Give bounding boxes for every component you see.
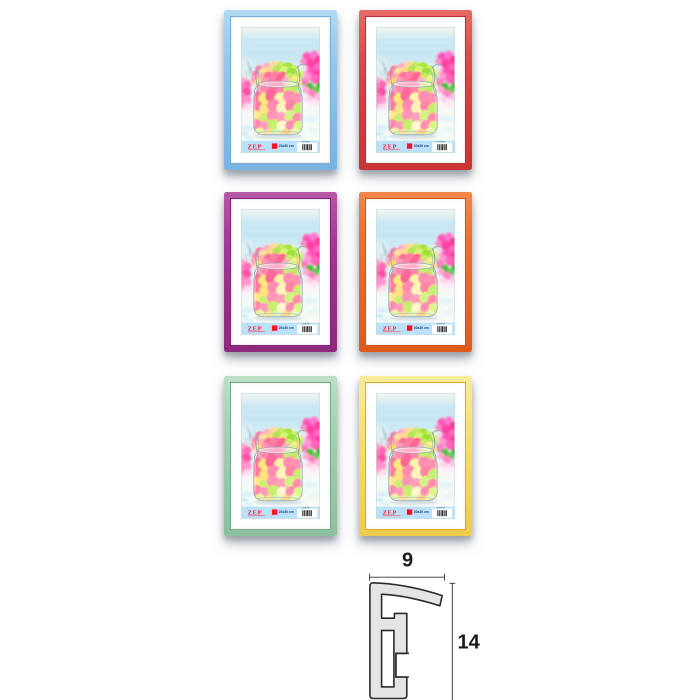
svg-text:9: 9: [402, 550, 413, 572]
svg-text:14: 14: [458, 632, 481, 654]
